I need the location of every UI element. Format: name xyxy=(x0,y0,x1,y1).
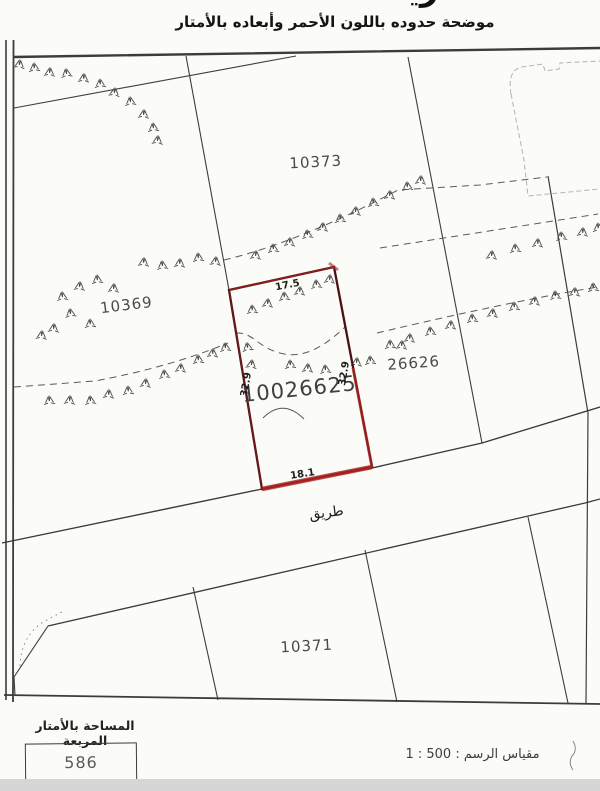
plot-red-bottom xyxy=(262,467,372,489)
arc-symbol xyxy=(263,408,304,419)
parcel-label-10371: 10371 xyxy=(280,636,334,657)
road-lines xyxy=(2,407,600,626)
scale-label: مقياس الرسم : 500 : 1 xyxy=(375,747,570,762)
boundary-southeast xyxy=(528,517,568,703)
boundary-northwest xyxy=(14,56,296,108)
frame-top xyxy=(13,48,600,57)
scan-edge-strip xyxy=(0,779,600,791)
frame-bottom xyxy=(4,695,600,704)
veg-line-through-plot xyxy=(236,327,345,355)
boundary-10369-10373 xyxy=(186,56,229,290)
road-label: طريق xyxy=(308,503,344,523)
boundary-east-vertical xyxy=(408,57,482,443)
frame-left-inner xyxy=(13,40,14,702)
parcel-label-10373: 10373 xyxy=(289,152,343,173)
map-frame xyxy=(4,40,600,704)
edge-scribble xyxy=(570,741,575,770)
area-value-box: 586 xyxy=(25,742,137,781)
parcel-label-10369: 10369 xyxy=(99,293,154,317)
pentagon-parcel xyxy=(14,626,48,695)
survey-map: 10373 10369 26626 10371 10026625 17.5 18… xyxy=(0,0,600,791)
parcel-label-26626: 26626 xyxy=(387,352,441,374)
veg-line-northeast xyxy=(380,214,598,248)
boundary-10371-west xyxy=(193,587,218,700)
area-value: 586 xyxy=(64,752,98,771)
boundary-10371-east xyxy=(365,550,397,702)
veg-line-west xyxy=(14,343,228,387)
tree-symbols xyxy=(13,60,600,405)
frame-right xyxy=(548,176,588,703)
pencil-parcel-outline xyxy=(510,61,600,196)
veg-line-east xyxy=(377,287,598,333)
